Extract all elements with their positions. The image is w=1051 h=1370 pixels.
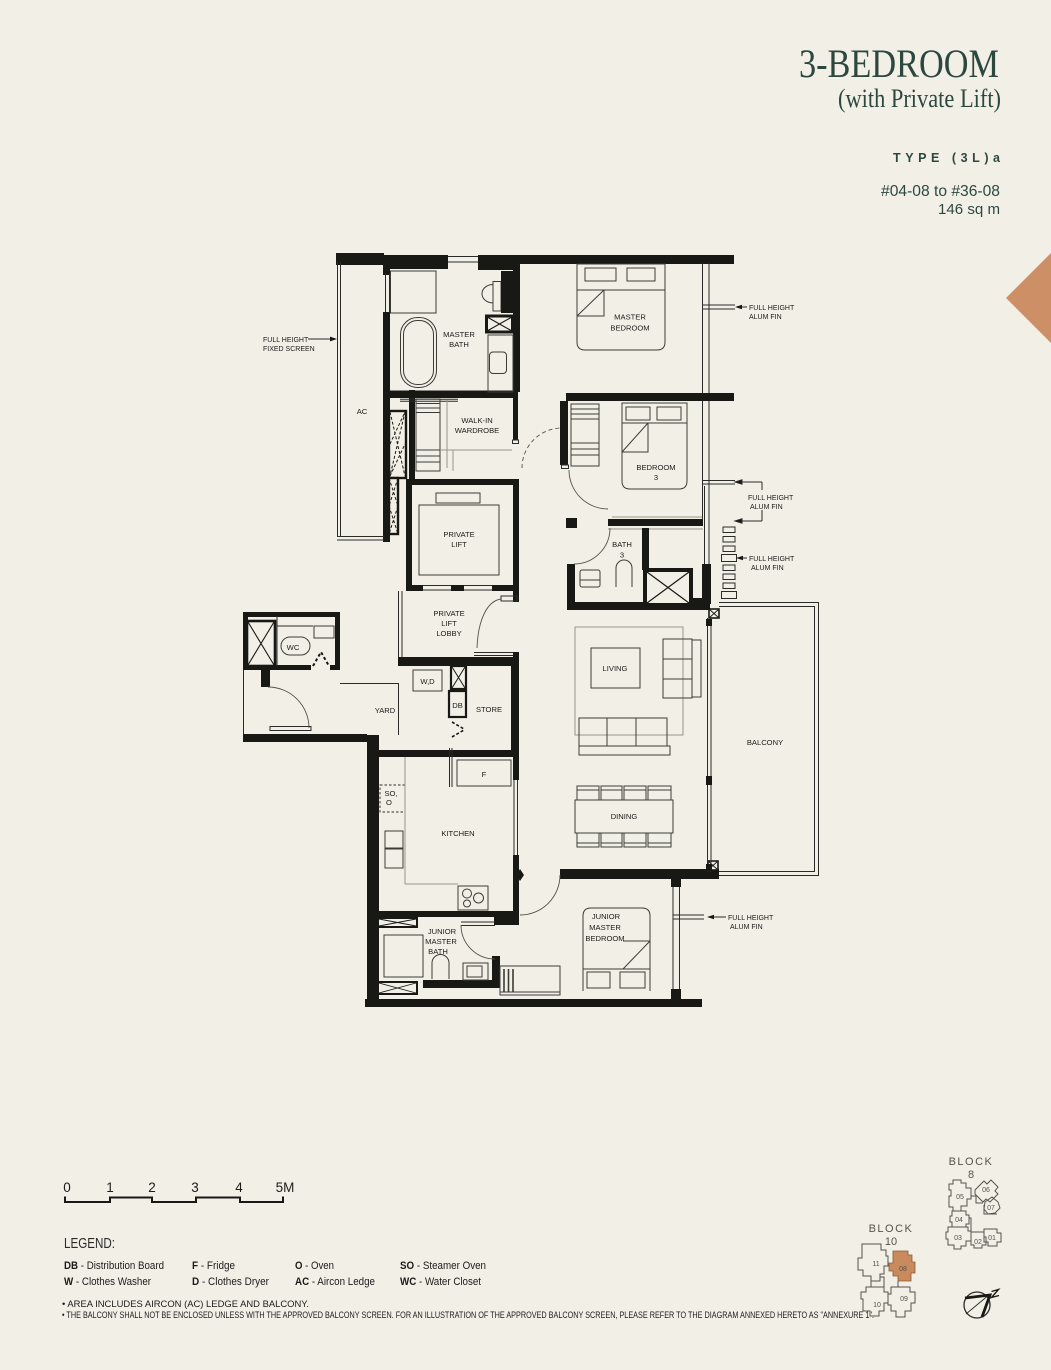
svg-text:3: 3 [654,473,658,482]
svg-text:ALUM FIN: ALUM FIN [750,504,783,511]
svg-text:1: 1 [106,1180,114,1195]
svg-text:03: 03 [954,1235,962,1242]
svg-text:05: 05 [956,1194,964,1201]
svg-text:(with Private Lift): (with Private Lift) [838,83,1001,113]
svg-text:SO - Steamer Oven: SO - Steamer Oven [400,1260,486,1272]
svg-text:BEDROOM: BEDROOM [585,934,624,943]
svg-text:FULL HEIGHT: FULL HEIGHT [728,915,774,922]
svg-text:09: 09 [900,1296,908,1303]
svg-text:YARD: YARD [375,706,396,715]
svg-text:PRIVATE: PRIVATE [443,530,474,539]
svg-text:BATH: BATH [428,947,448,956]
svg-text:JUNIOR: JUNIOR [592,912,621,921]
svg-text:2: 2 [148,1180,156,1195]
svg-text:WC - Water Closet: WC - Water Closet [400,1276,482,1288]
svg-text:W - Clothes Washer: W - Clothes Washer [64,1276,151,1288]
svg-text:0: 0 [63,1180,71,1195]
svg-text:01: 01 [988,1235,996,1242]
svg-text:04: 04 [955,1217,963,1224]
svg-text:5M: 5M [276,1180,295,1195]
svg-text:BLOCK: BLOCK [869,1223,914,1235]
svg-text:07: 07 [987,1205,995,1212]
svg-text:LOBBY: LOBBY [436,629,461,638]
svg-text:SO,: SO, [384,789,397,798]
svg-text:F: F [482,770,487,779]
svg-text:AC: AC [357,407,368,416]
svg-text:FULL HEIGHT: FULL HEIGHT [749,305,795,312]
svg-text:MASTER: MASTER [614,313,646,322]
svg-text:DB: DB [452,701,463,710]
svg-text:LIFT: LIFT [451,540,467,549]
svg-text:ALUM FIN: ALUM FIN [751,565,784,572]
svg-text:• AREA INCLUDES AIRCON (AC) LE: • AREA INCLUDES AIRCON (AC) LEDGE AND BA… [62,1299,309,1309]
svg-text:BLOCK: BLOCK [949,1156,994,1168]
svg-text:JUNIOR: JUNIOR [428,927,457,936]
svg-text:10: 10 [873,1302,881,1309]
svg-text:3: 3 [191,1180,199,1195]
svg-text:06: 06 [982,1187,990,1194]
svg-text:BEDROOM: BEDROOM [636,463,675,472]
svg-text:02: 02 [974,1239,982,1246]
svg-text:MASTER: MASTER [589,923,621,932]
svg-text:ALUM FIN: ALUM FIN [749,314,782,321]
svg-text:BALCONY: BALCONY [747,738,783,747]
svg-text:DINING: DINING [611,812,638,821]
svg-text:BEDROOM: BEDROOM [610,324,649,333]
svg-text:W,D: W,D [420,677,435,686]
svg-text:4: 4 [235,1180,243,1195]
svg-text:WALK-IN: WALK-IN [461,416,492,425]
svg-text:08: 08 [899,1266,907,1273]
svg-text:O: O [386,798,392,807]
svg-text:10: 10 [885,1236,897,1248]
svg-text:FIXED SCREEN: FIXED SCREEN [263,346,315,353]
svg-text:146 sq m: 146 sq m [938,201,1000,218]
svg-text:#04-08 to #36-08: #04-08 to #36-08 [881,183,1000,200]
svg-text:3: 3 [620,551,624,560]
svg-text:DB - Distribution Board: DB - Distribution Board [64,1260,164,1272]
svg-text:ALUM FIN: ALUM FIN [730,924,763,931]
svg-text:AC - Aircon Ledge: AC - Aircon Ledge [295,1276,375,1288]
svg-text:11: 11 [872,1261,879,1268]
svg-text:BATH: BATH [449,340,469,349]
svg-text:WARDROBE: WARDROBE [455,426,499,435]
svg-text:LIVING: LIVING [603,664,628,673]
svg-text:LEGEND:: LEGEND: [64,1236,115,1252]
svg-text:O - Oven: O - Oven [295,1260,334,1272]
svg-text:MASTER: MASTER [425,937,457,946]
svg-text:FULL HEIGHT: FULL HEIGHT [263,337,309,344]
svg-text:PRIVATE: PRIVATE [433,609,464,618]
svg-text:8: 8 [968,1169,974,1181]
svg-text:TYPE (3L)a: TYPE (3L)a [893,151,1001,165]
svg-text:MASTER: MASTER [443,330,475,339]
svg-text:D - Clothes Dryer: D - Clothes Dryer [192,1276,269,1288]
svg-text:BATH: BATH [612,540,632,549]
svg-text:KITCHEN: KITCHEN [441,829,474,838]
svg-text:LIFT: LIFT [441,619,457,628]
svg-text:FULL HEIGHT: FULL HEIGHT [749,556,795,563]
svg-text:WC: WC [287,643,300,652]
svg-text:3-BEDROOM: 3-BEDROOM [799,41,999,86]
svg-text:FULL HEIGHT: FULL HEIGHT [748,495,794,502]
svg-text:F - Fridge: F - Fridge [192,1260,235,1272]
svg-text:• THE BALCONY SHALL NOT BE ENC: • THE BALCONY SHALL NOT BE ENCLOSED UNLE… [62,1310,874,1320]
svg-text:STORE: STORE [476,705,502,714]
